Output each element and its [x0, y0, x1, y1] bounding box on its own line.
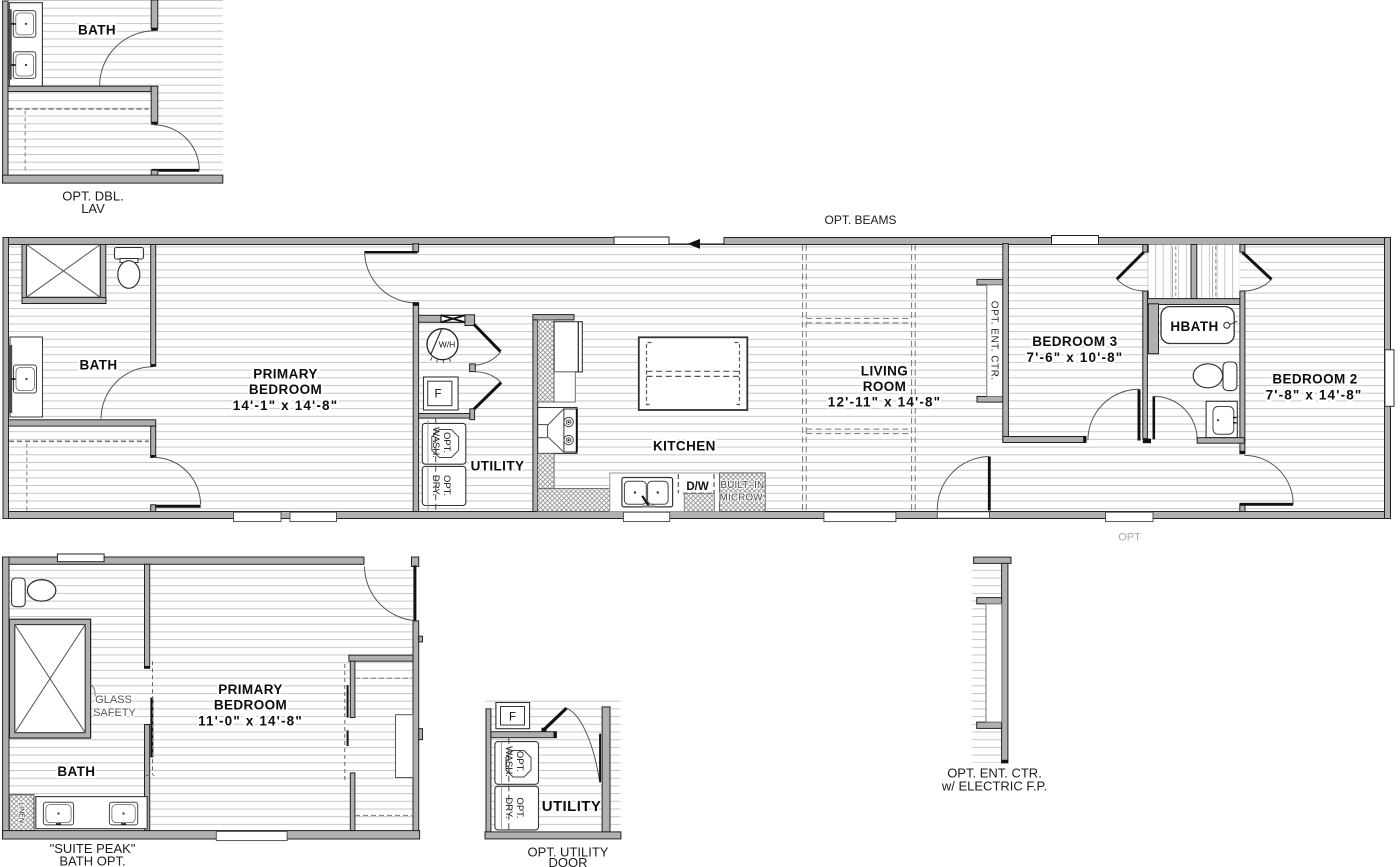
svg-text:UTILITY: UTILITY [471, 458, 525, 473]
svg-text:OPT.: OPT. [441, 475, 452, 496]
svg-text:OPT.: OPT. [441, 432, 452, 453]
svg-text:SAFETY: SAFETY [93, 707, 136, 719]
svg-text:F: F [434, 389, 441, 401]
svg-text:BATH: BATH [79, 358, 117, 373]
svg-text:BEDROOM 2: BEDROOM 2 [1272, 372, 1357, 387]
svg-text:BATH: BATH [57, 764, 95, 779]
svg-text:GLASS: GLASS [95, 694, 132, 706]
svg-text:D/W: D/W [686, 481, 709, 493]
svg-text:F: F [509, 712, 516, 724]
svg-text:OPT. ENT. CTR.: OPT. ENT. CTR. [989, 301, 1000, 381]
svg-text:BEDROOM: BEDROOM [249, 382, 322, 397]
svg-text:OPT. BEAMS: OPT. BEAMS [824, 213, 896, 227]
svg-text:W/H: W/H [439, 340, 456, 350]
svg-text:BEDROOM: BEDROOM [214, 698, 287, 713]
svg-text:14'-1" x 14'-8": 14'-1" x 14'-8" [233, 398, 339, 413]
svg-text:MICROW.: MICROW. [720, 492, 765, 503]
svg-text:OPT.: OPT. [514, 797, 525, 818]
svg-text:BATH: BATH [78, 23, 116, 38]
svg-text:HBATH: HBATH [1170, 319, 1218, 334]
svg-text:12'-11" x 14'-8": 12'-11" x 14'-8" [828, 395, 941, 410]
svg-text:7'-6" x 10'-8": 7'-6" x 10'-8" [1026, 350, 1123, 365]
svg-text:LIVING: LIVING [861, 363, 908, 378]
svg-text:11'-0" x 14'-8": 11'-0" x 14'-8" [198, 713, 303, 728]
svg-text:UTILITY: UTILITY [542, 798, 601, 815]
svg-text:w/ ELECTRIC F.P.: w/ ELECTRIC F.P. [941, 779, 1047, 794]
svg-text:PRIMARY: PRIMARY [253, 367, 318, 382]
svg-text:DOOR: DOOR [549, 855, 588, 867]
svg-text:BEDROOM 3: BEDROOM 3 [1032, 334, 1117, 349]
svg-text:LAV: LAV [81, 201, 105, 216]
svg-text:OPT: OPT [1118, 532, 1141, 544]
svg-text:BUILT–IN: BUILT–IN [720, 480, 764, 491]
svg-text:7'-8" x 14'-8": 7'-8" x 14'-8" [1266, 387, 1363, 402]
svg-text:ROOM: ROOM [863, 379, 907, 394]
svg-text:LINEN: LINEN [17, 802, 24, 823]
svg-text:KITCHEN: KITCHEN [653, 439, 716, 454]
svg-text:PRIMARY: PRIMARY [218, 682, 283, 697]
svg-text:BATH OPT.: BATH OPT. [59, 854, 125, 867]
svg-text:OPT.: OPT. [514, 751, 525, 772]
